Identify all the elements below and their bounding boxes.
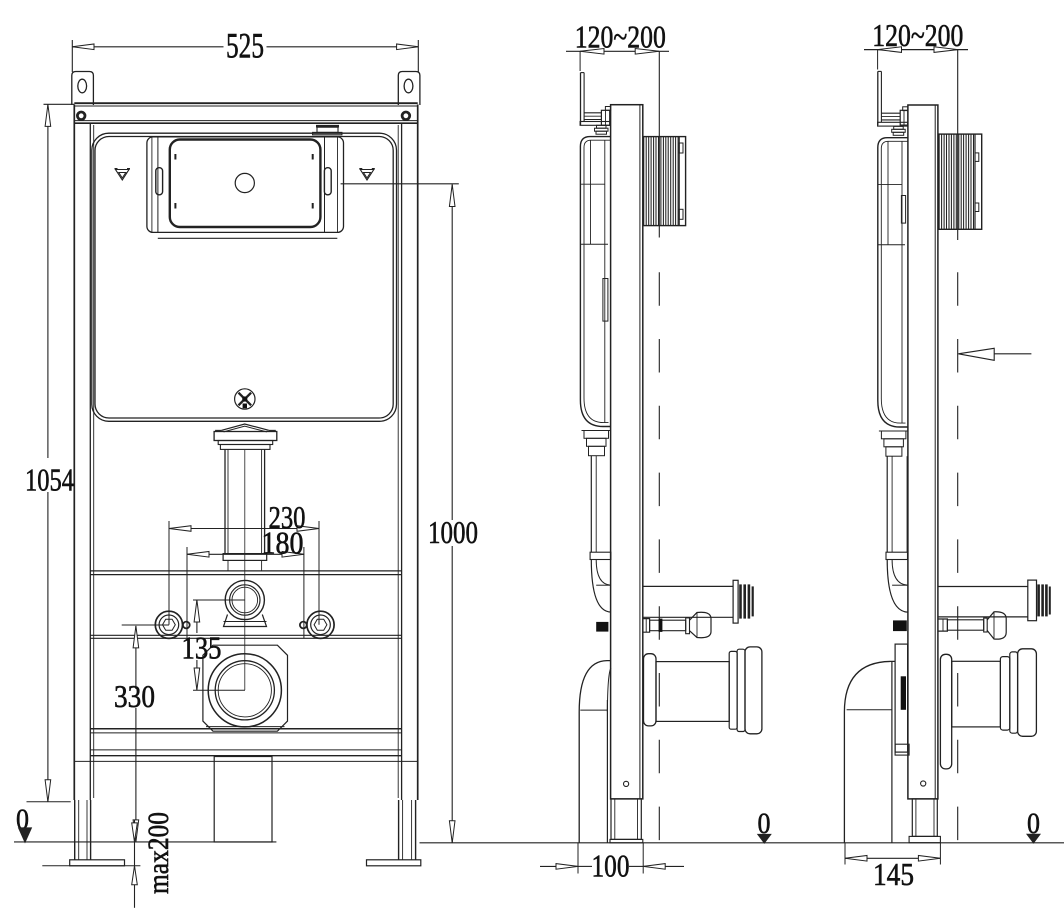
- svg-text:120~200: 120~200: [872, 17, 963, 53]
- svg-text:525: 525: [226, 26, 264, 66]
- svg-text:145: 145: [873, 856, 914, 892]
- svg-text:1054: 1054: [25, 462, 74, 498]
- svg-text:120~200: 120~200: [575, 19, 666, 55]
- svg-text:135: 135: [182, 630, 222, 666]
- svg-text:180: 180: [262, 525, 304, 561]
- svg-text:330: 330: [114, 678, 155, 714]
- svg-text:100: 100: [592, 848, 630, 884]
- svg-text:1000: 1000: [428, 514, 478, 550]
- svg-text:max200: max200: [142, 812, 175, 894]
